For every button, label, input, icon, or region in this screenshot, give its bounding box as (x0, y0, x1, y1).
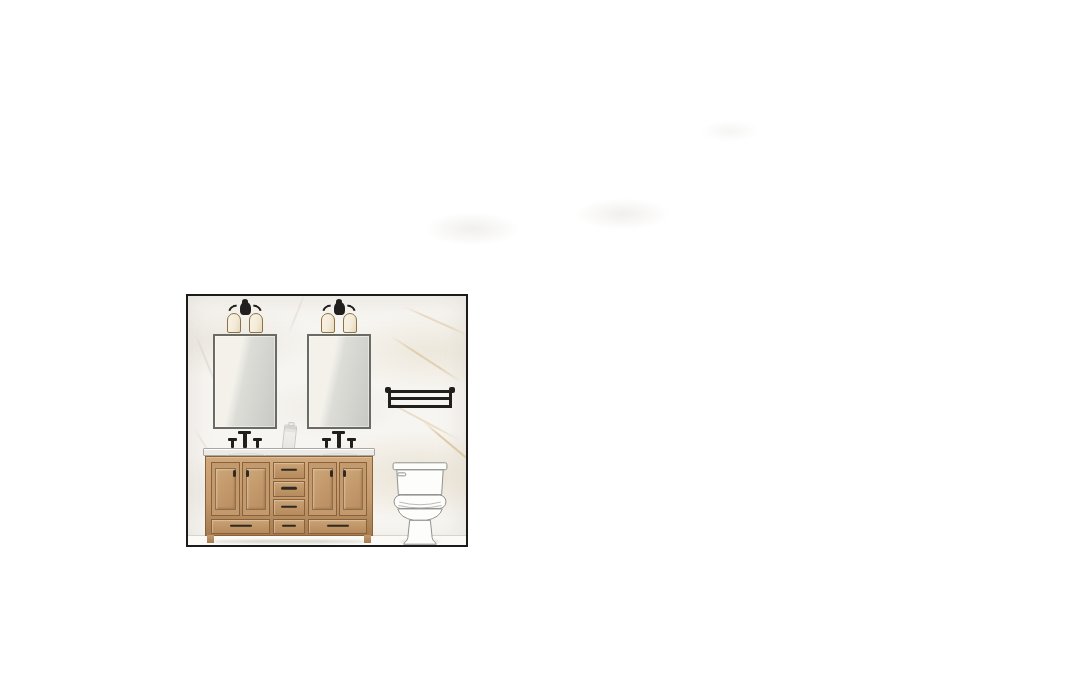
door-knob (330, 470, 333, 477)
background-smudge (700, 120, 760, 142)
vanity-lower-drawers (211, 519, 367, 534)
towel-rack-post (449, 391, 452, 408)
faucet-handle (350, 438, 353, 448)
toilet-bowl (398, 509, 442, 520)
towel-rack (385, 386, 455, 412)
door-panel (343, 468, 364, 510)
vanity-door (211, 462, 240, 516)
faucet-right (322, 431, 356, 448)
sconce-shade (227, 313, 241, 333)
mirror-right (307, 334, 371, 429)
vanity-drawer (273, 462, 305, 479)
vanity-doors-right (308, 462, 367, 516)
countertop (203, 448, 375, 456)
vanity-leg (364, 535, 371, 543)
door-knob (246, 470, 249, 477)
sconce-left (227, 299, 263, 335)
toilet-pedestal (404, 520, 437, 544)
door-panel (246, 468, 267, 510)
vanity-floor-shadow (210, 540, 368, 543)
vanity-cabinet (205, 456, 373, 536)
toilet (392, 462, 448, 545)
drawer-pull (230, 525, 252, 528)
drawer-pull (327, 525, 349, 528)
vanity-drawer (211, 519, 270, 534)
drawer-pull (281, 506, 297, 509)
vanity-drawer (273, 499, 305, 516)
faucet-handle (231, 438, 234, 448)
sconce-body (240, 302, 251, 315)
sconce-shade (321, 313, 335, 333)
door-knob (233, 470, 236, 477)
vanity-door (242, 462, 271, 516)
towel-rack-rail (388, 405, 452, 408)
towel-rack-rail (387, 390, 453, 393)
marble-vein (403, 305, 468, 336)
sconce-body (334, 302, 345, 315)
vanity-leg (207, 535, 214, 543)
faucet-spout (337, 432, 341, 448)
faucet-left (228, 431, 262, 448)
faucet-handle (256, 438, 259, 448)
vanity-drawer (308, 519, 367, 534)
sconce-shade (343, 313, 357, 333)
towel-rack-post (388, 391, 391, 408)
canvas: { "canvas": { "width": 1080, "height": 6… (0, 0, 1080, 696)
faucet-handle (325, 438, 328, 448)
faucet-spout (243, 432, 247, 448)
mirror-left (213, 334, 277, 429)
vanity-drawer (273, 519, 305, 534)
vanity-door (308, 462, 337, 516)
toilet-flush-lever (398, 473, 406, 476)
sconce-right (321, 299, 357, 335)
elevation-board (186, 294, 468, 547)
towel-rack-rail (388, 397, 452, 400)
door-knob (343, 470, 346, 477)
soap-dispenser-pump (288, 422, 294, 427)
vanity-center-drawers (273, 462, 305, 516)
drawer-pull (281, 468, 297, 471)
toilet-tank-lid (393, 463, 447, 470)
soap-dispenser (282, 424, 298, 450)
sconce-shade (249, 313, 263, 333)
background-smudge (575, 198, 670, 230)
drawer-pull (281, 487, 297, 490)
marble-vein (287, 294, 306, 335)
vanity-door (339, 462, 368, 516)
vanity-drawer (273, 481, 305, 498)
background-smudge (425, 212, 520, 246)
marble-vein (390, 335, 462, 382)
drawer-pull (282, 525, 296, 528)
vanity-doors-left (211, 462, 270, 516)
